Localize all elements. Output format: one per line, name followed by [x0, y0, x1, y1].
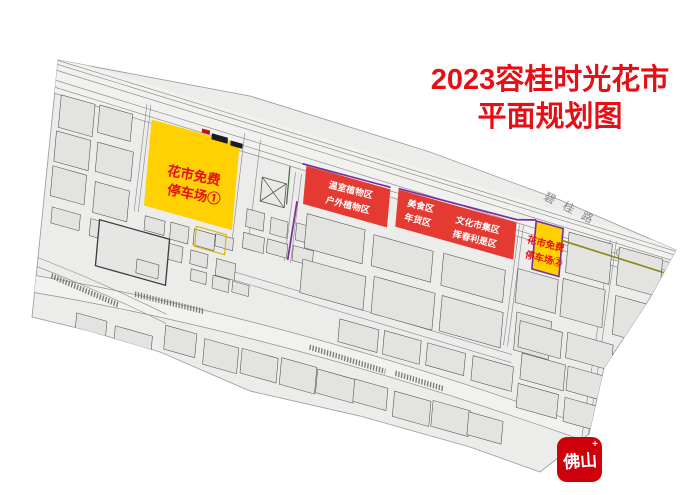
foshan-logo: 佛山 +: [557, 437, 602, 482]
map-title-line2: 平面规划图: [400, 99, 700, 136]
foshan-logo-plus-icon: +: [592, 439, 598, 450]
map-title-line1: 2023容桂时光花市: [400, 62, 700, 99]
map-title: 2023容桂时光花市 平面规划图: [400, 62, 700, 136]
building: [615, 348, 656, 387]
building: [610, 411, 649, 445]
flower-market-plan: 花市免费 停车场① 温室植物区 户外植物区 美食区 年货区 文化市集区 挥春利是…: [0, 0, 700, 495]
building: [613, 378, 657, 415]
